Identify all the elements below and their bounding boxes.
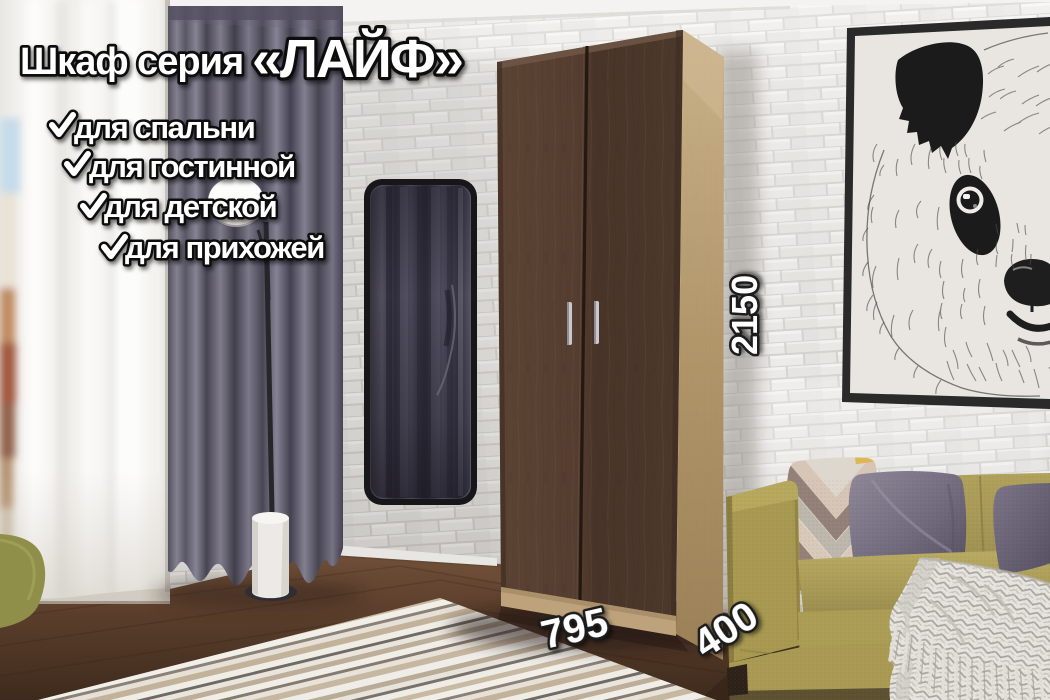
svg-text:«ЛАЙФ»: «ЛАЙФ» [252,28,462,89]
svg-text:для гостинной: для гостинной [89,149,295,184]
svg-text:2150: 2150 [724,275,765,355]
svg-text:для прихожей: для прихожей [125,230,324,265]
svg-text:Шкаф серия: Шкаф серия [20,41,243,83]
svg-text:для спальни: для спальни [74,110,254,145]
svg-text:для детской: для детской [104,189,276,224]
